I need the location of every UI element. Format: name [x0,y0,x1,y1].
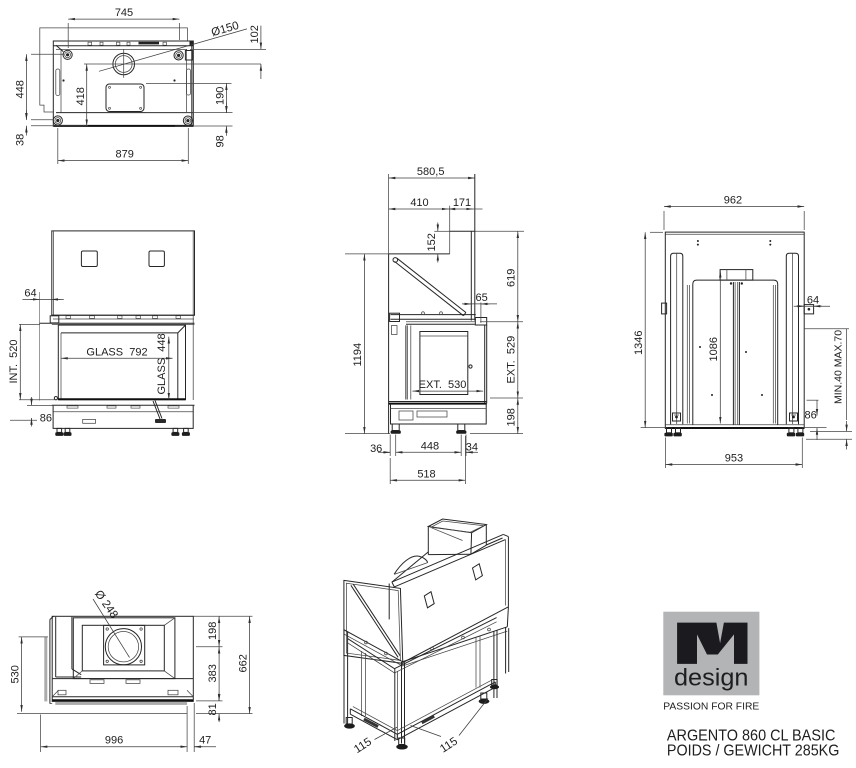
svg-text:662: 662 [237,654,249,672]
svg-text:GLASS 792: GLASS 792 [86,346,147,358]
svg-text:448: 448 [15,80,27,98]
svg-text:996: 996 [105,735,123,747]
svg-text:619: 619 [506,269,518,287]
svg-text:410: 410 [410,197,428,209]
svg-text:448: 448 [421,440,439,452]
svg-text:383: 383 [207,664,219,682]
svg-text:962: 962 [724,195,742,207]
svg-text:1346: 1346 [633,331,645,355]
svg-text:86: 86 [805,410,817,422]
svg-text:34: 34 [466,442,478,454]
svg-text:530: 530 [9,665,21,683]
svg-text:36: 36 [370,443,382,455]
svg-text:EXT. 530: EXT. 530 [419,379,467,391]
svg-text:102: 102 [249,25,261,43]
svg-text:INT. 520: INT. 520 [8,339,20,383]
svg-text:PASSION FOR FIRE: PASSION FOR FIRE [663,702,759,713]
svg-text:879: 879 [116,149,134,161]
svg-text:953: 953 [725,453,743,465]
svg-text:1194: 1194 [352,343,364,367]
svg-text:745: 745 [115,7,133,19]
svg-text:64: 64 [24,288,36,300]
svg-text:design: design [674,665,749,692]
svg-text:EXT. 529: EXT. 529 [506,336,518,384]
svg-text:98: 98 [215,135,227,147]
svg-text:1086: 1086 [708,337,720,361]
svg-text:47: 47 [199,735,211,747]
svg-text:38: 38 [15,134,27,146]
svg-text:418: 418 [75,87,87,105]
svg-text:171: 171 [453,197,471,209]
svg-text:81: 81 [207,703,219,715]
svg-text:198: 198 [207,622,219,640]
svg-text:152: 152 [426,233,438,251]
svg-text:65: 65 [475,292,487,304]
svg-text:198: 198 [506,408,518,426]
svg-text:POIDS / GEWICHT 285KG: POIDS / GEWICHT 285KG [667,743,840,760]
svg-text:580,5: 580,5 [417,166,445,178]
svg-text:190: 190 [215,87,227,105]
svg-text:64: 64 [807,295,819,307]
svg-text:518: 518 [417,468,435,480]
svg-text:MIN.40 MAX.70: MIN.40 MAX.70 [833,330,845,404]
svg-text:GLASS 448: GLASS 448 [156,333,168,394]
svg-text:86: 86 [40,413,52,425]
